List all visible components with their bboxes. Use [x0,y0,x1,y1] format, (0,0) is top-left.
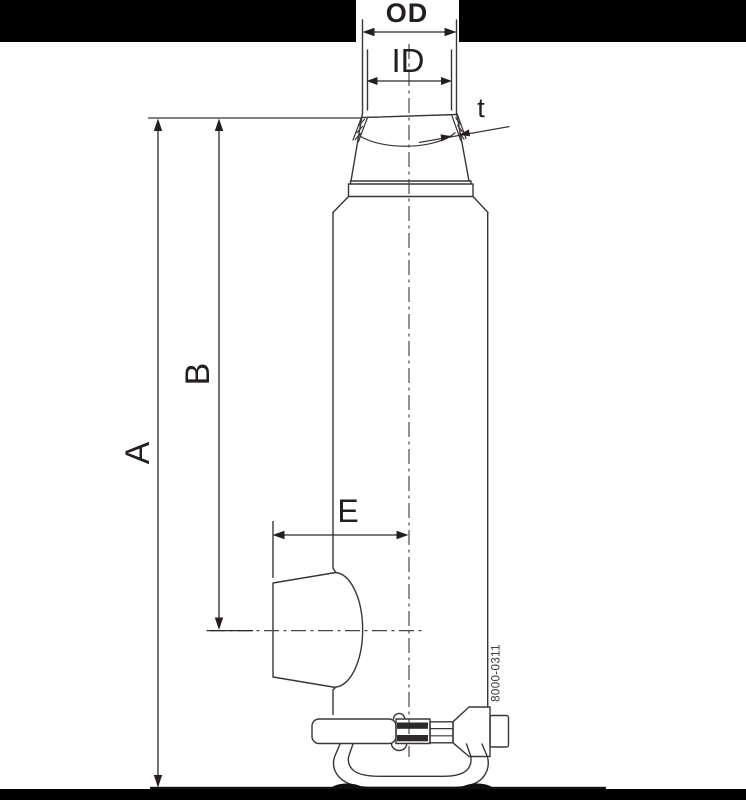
page-background [0,0,746,800]
od-label: OD [386,0,429,28]
part-number-label: 8000-0311 [491,644,503,702]
b-label: B [179,363,217,386]
top-mask-left [0,0,356,42]
a-label: A [119,441,157,464]
clamp-slot-upper [397,723,428,729]
t-label: t [477,93,485,123]
clamp-slot-lower [397,735,428,741]
drawing-page: OD ID t A B E 8000-0311 [0,0,746,800]
e-label: E [337,493,358,529]
id-label: ID [392,42,425,79]
top-mask-right [459,0,746,42]
bottom-mask [0,789,746,800]
technical-drawing: OD ID t A B E 8000-0311 [0,0,746,800]
